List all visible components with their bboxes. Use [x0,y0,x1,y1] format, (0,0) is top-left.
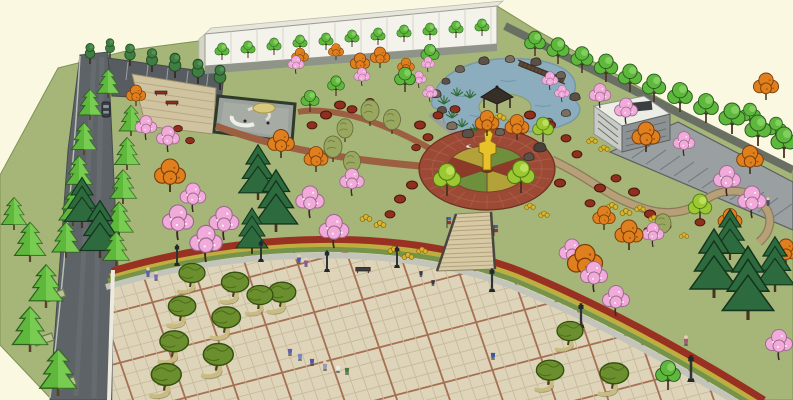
rock [495,128,504,135]
rock [447,122,457,130]
redshrub [307,122,317,129]
redshrub [572,151,582,158]
redshrub [174,125,183,131]
redshrub [321,111,332,119]
redshrub [555,179,566,187]
rock [556,71,565,78]
rock [531,58,541,66]
redshrub [423,134,433,141]
redshrub [415,121,426,129]
redshrub [561,135,571,142]
car [102,102,110,117]
rock [442,78,450,84]
park-scene-svg [0,0,793,400]
rock [524,153,534,161]
park-render-stage [0,0,793,400]
redshrub [433,112,443,119]
redshrub [186,137,195,143]
redshrub [347,106,357,113]
sand-mound [253,103,275,113]
redshrub [385,211,395,218]
rock [479,57,489,65]
redshrub [595,184,606,192]
redshrub [611,175,621,182]
redshrub [629,188,640,196]
redshrub [695,219,705,226]
redshrub [412,144,421,150]
rock [570,93,580,101]
rock [505,55,514,62]
redshrub [335,101,346,109]
rock [534,143,546,152]
rock [561,109,570,116]
redshrub [585,200,595,207]
redshrub [525,111,536,119]
rock [455,65,464,72]
rock [462,129,473,138]
redshrub [407,181,418,189]
redshrub [395,195,406,203]
